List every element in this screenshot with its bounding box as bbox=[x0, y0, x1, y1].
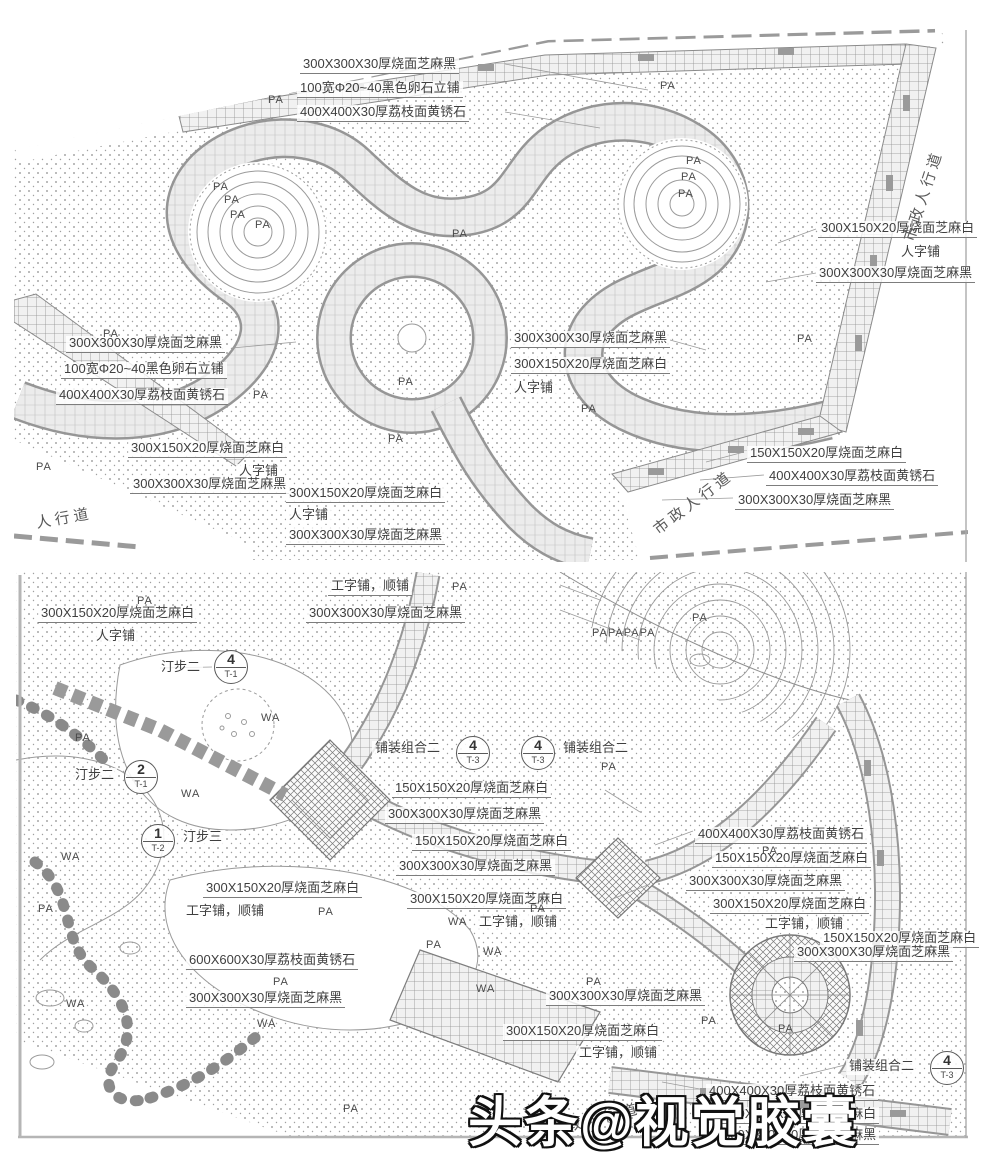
detail-number: 4 bbox=[227, 651, 235, 667]
detail-reference-bubble: 4T-3 bbox=[456, 736, 490, 770]
material-label: 300X150X20厚烧面芝麻白 bbox=[128, 441, 287, 458]
detail-reference-bubble: 2T-1 bbox=[124, 760, 158, 794]
material-label: 300X300X30厚烧面芝麻黑 bbox=[66, 336, 225, 353]
material-label: 300X300X30厚烧面芝麻黑 bbox=[794, 945, 953, 962]
area-code: PA bbox=[452, 228, 468, 240]
material-label: 400X400X30厚荔枝面黄锈石 bbox=[297, 105, 469, 122]
material-label: 人字铺 bbox=[511, 381, 556, 397]
material-label: 300X300X30厚烧面芝麻黑 bbox=[816, 266, 975, 283]
area-code: PA bbox=[103, 328, 119, 340]
material-label: 300X300X30厚烧面芝麻黑 bbox=[300, 57, 459, 74]
detail-reference-bubble: 4T-1 bbox=[214, 650, 248, 684]
area-code: WA bbox=[261, 712, 280, 724]
road-label: 人行道 bbox=[34, 502, 94, 533]
detail-number: 4 bbox=[469, 737, 477, 753]
material-label: 150X150X20厚烧面芝麻白 bbox=[747, 446, 906, 463]
area-code: PA bbox=[692, 612, 708, 624]
detail-reference-bubble: 4T-3 bbox=[930, 1051, 964, 1085]
material-label: 工字铺，顺铺 bbox=[576, 1046, 660, 1062]
material-label: 300X150X20厚烧面芝麻白 bbox=[503, 1024, 662, 1041]
area-code: WA bbox=[448, 916, 467, 928]
area-code: PA bbox=[586, 976, 602, 988]
material-label: 人字铺 bbox=[898, 245, 943, 261]
material-label: 300X150X20厚烧面芝麻白 bbox=[203, 881, 362, 898]
area-code: PA bbox=[36, 461, 52, 473]
material-label: 300X300X30厚烧面芝麻黑 bbox=[546, 989, 705, 1006]
area-code: PA bbox=[530, 903, 546, 915]
material-label: 300X300X30厚烧面芝麻黑 bbox=[686, 874, 845, 891]
area-code: PA bbox=[38, 903, 54, 915]
area-code: PA bbox=[213, 181, 229, 193]
watermark-text: 头条@视觉胶囊 bbox=[468, 1078, 859, 1157]
area-code: WA bbox=[476, 983, 495, 995]
area-code: WA bbox=[257, 1018, 276, 1030]
material-label: 150X150X20厚烧面芝麻白 bbox=[392, 781, 551, 798]
material-label: 300X150X20厚烧面芝麻白 bbox=[38, 606, 197, 623]
area-code: PA bbox=[681, 171, 697, 183]
area-code: PA bbox=[398, 376, 414, 388]
material-label: 铺装组合二 bbox=[846, 1059, 917, 1075]
detail-reference-bubble: 4T-3 bbox=[521, 736, 555, 770]
area-code: PA bbox=[660, 80, 676, 92]
detail-number: 4 bbox=[943, 1052, 951, 1068]
area-code: PA bbox=[678, 188, 694, 200]
area-code: PA bbox=[224, 194, 240, 206]
area-code: PA bbox=[268, 94, 284, 106]
material-label: 汀步二 bbox=[72, 768, 117, 784]
area-code: PA bbox=[426, 939, 442, 951]
area-code: PAPAPAPA bbox=[592, 627, 655, 639]
area-code: PA bbox=[701, 1015, 717, 1027]
sheet-reference: T-3 bbox=[466, 754, 479, 767]
area-code: PA bbox=[343, 1103, 359, 1115]
detail-number: 4 bbox=[534, 737, 542, 753]
material-label: 300X300X30厚烧面芝麻黑 bbox=[306, 606, 465, 623]
sheet-reference: T-1 bbox=[134, 778, 147, 791]
area-code: WA bbox=[61, 851, 80, 863]
area-code: PA bbox=[75, 732, 91, 744]
material-label: 汀步三 bbox=[180, 830, 225, 846]
material-label: 300X300X30厚烧面芝麻黑 bbox=[286, 528, 445, 545]
road-label: 市政人行道 bbox=[649, 465, 738, 539]
area-code: WA bbox=[181, 788, 200, 800]
material-label: 300X300X30厚烧面芝麻黑 bbox=[186, 991, 345, 1008]
sheet-reference: T-3 bbox=[531, 754, 544, 767]
area-code: PA bbox=[581, 403, 597, 415]
detail-reference-bubble: 1T-2 bbox=[141, 824, 175, 858]
material-label: 300X150X20厚烧面芝麻白 bbox=[710, 897, 869, 914]
material-label: 300X300X30厚烧面芝麻黑 bbox=[130, 477, 289, 494]
sheet-reference: T-1 bbox=[224, 668, 237, 681]
material-label: 300X300X30厚烧面芝麻黑 bbox=[385, 807, 544, 824]
area-code: PA bbox=[797, 333, 813, 345]
sheet-reference: T-2 bbox=[151, 842, 164, 855]
material-label: 300X150X20厚烧面芝麻白 bbox=[511, 357, 670, 374]
material-label: 工字铺，顺铺 bbox=[183, 904, 267, 920]
area-code: PA bbox=[230, 209, 246, 221]
material-label: 铺装组合二 bbox=[372, 741, 443, 757]
material-label: 人字铺 bbox=[286, 508, 331, 524]
material-label: 100宽Φ20~40黑色卵石立铺 bbox=[61, 362, 227, 379]
material-label: 300X300X30厚烧面芝麻黑 bbox=[396, 859, 555, 876]
material-label: 100宽Φ20~40黑色卵石立铺 bbox=[297, 81, 463, 98]
material-label: 汀步二 bbox=[158, 660, 203, 676]
area-code: PA bbox=[601, 761, 617, 773]
material-label: 150X150X20厚烧面芝麻白 bbox=[712, 851, 871, 868]
material-label: 150X150X20厚烧面芝麻白 bbox=[412, 834, 571, 851]
area-code: PA bbox=[778, 1023, 794, 1035]
area-code: PA bbox=[762, 845, 778, 857]
area-code: PA bbox=[273, 976, 289, 988]
material-label: 300X300X30厚烧面芝麻黑 bbox=[511, 331, 670, 348]
material-label: 400X400X30厚荔枝面黄锈石 bbox=[766, 469, 938, 486]
material-label: 400X400X30厚荔枝面黄锈石 bbox=[56, 388, 228, 405]
material-label: 工字铺，顺铺 bbox=[328, 579, 412, 596]
material-label: 300X300X30厚烧面芝麻黑 bbox=[735, 493, 894, 510]
area-code: PA bbox=[137, 595, 153, 607]
sheet-reference: T-3 bbox=[940, 1069, 953, 1082]
area-code: PA bbox=[452, 581, 468, 593]
area-code: PA bbox=[318, 906, 334, 918]
annotation-layer: 300X300X30厚烧面芝麻黑100宽Φ20~40黑色卵石立铺400X400X… bbox=[0, 0, 1000, 1164]
detail-number: 2 bbox=[137, 761, 145, 777]
area-code: WA bbox=[66, 998, 85, 1010]
material-label: 工字铺，顺铺 bbox=[476, 915, 560, 931]
area-code: PA bbox=[686, 155, 702, 167]
area-code: PA bbox=[253, 389, 269, 401]
material-label: 300X150X20厚烧面芝麻白 bbox=[286, 486, 445, 503]
material-label: 600X600X30厚荔枝面黄锈石 bbox=[186, 953, 358, 970]
material-label: 人字铺 bbox=[93, 629, 138, 645]
area-code: WA bbox=[483, 946, 502, 958]
material-label: 400X400X30厚荔枝面黄锈石 bbox=[695, 827, 867, 844]
paving-plan-sheet: 300X300X30厚烧面芝麻黑100宽Φ20~40黑色卵石立铺400X400X… bbox=[0, 0, 1000, 1164]
area-code: PA bbox=[255, 219, 271, 231]
material-label: 铺装组合二 bbox=[560, 741, 631, 757]
detail-number: 1 bbox=[154, 825, 162, 841]
area-code: PA bbox=[388, 433, 404, 445]
